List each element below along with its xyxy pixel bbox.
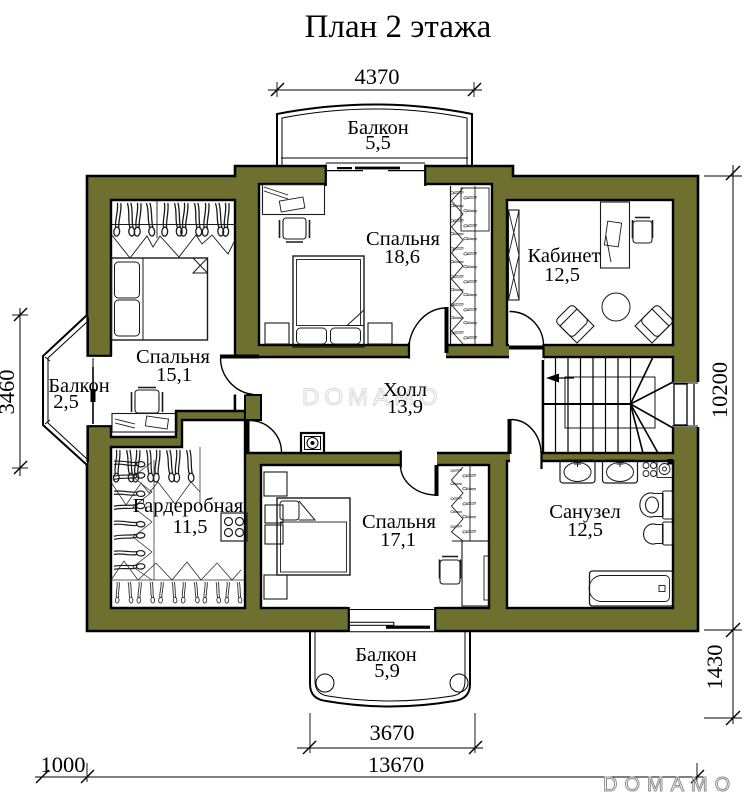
svg-text:5,9: 5,9 — [374, 660, 400, 682]
svg-text:5,5: 5,5 — [365, 132, 391, 154]
svg-text:10200: 10200 — [707, 362, 732, 418]
svg-text:DOMAMO: DOMAMO — [603, 774, 737, 796]
svg-text:4370: 4370 — [355, 64, 400, 89]
svg-text:13670: 13670 — [368, 752, 424, 777]
svg-text:1000: 1000 — [41, 752, 86, 777]
svg-text:2,5: 2,5 — [53, 391, 79, 413]
svg-text:17,1: 17,1 — [380, 529, 416, 551]
svg-text:11,5: 11,5 — [172, 516, 207, 538]
svg-text:18,6: 18,6 — [384, 246, 420, 268]
svg-text:12,5: 12,5 — [567, 519, 603, 541]
svg-text:Гардеробная: Гардеробная — [133, 495, 244, 517]
svg-text:План 2 этажа: План 2 этажа — [305, 9, 492, 45]
svg-text:3670: 3670 — [370, 720, 415, 745]
svg-text:15,1: 15,1 — [156, 364, 192, 386]
svg-text:12,5: 12,5 — [544, 264, 580, 286]
svg-text:3460: 3460 — [0, 370, 19, 415]
svg-text:1430: 1430 — [702, 645, 727, 690]
svg-text:13,9: 13,9 — [387, 396, 423, 418]
